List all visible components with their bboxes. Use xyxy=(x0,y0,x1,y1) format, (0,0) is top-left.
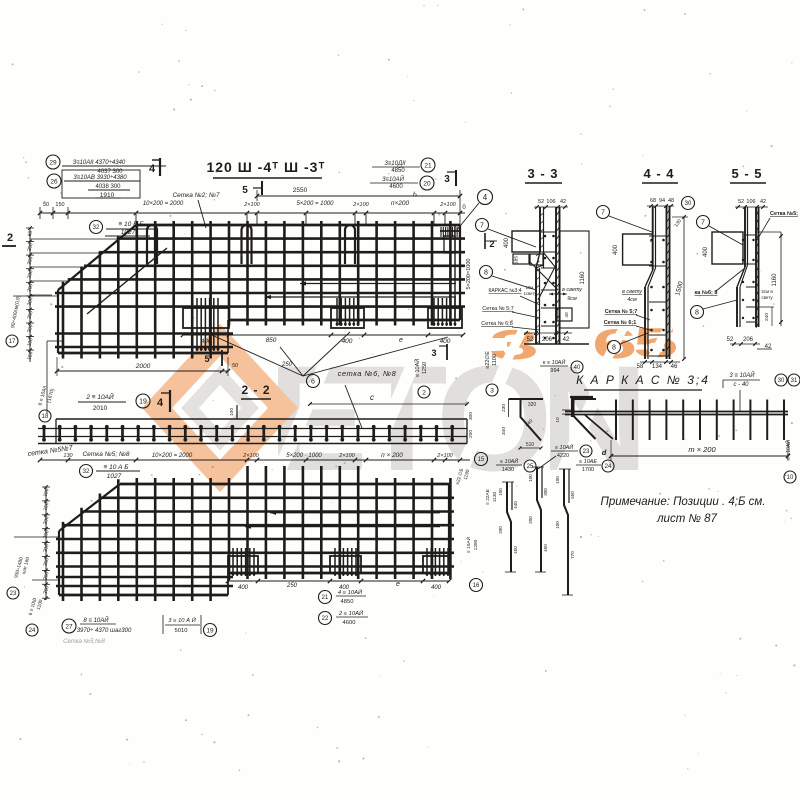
svg-text:e: e xyxy=(399,337,403,344)
svg-text:4 ≡ 10АЙ: 4 ≡ 10АЙ xyxy=(338,588,363,596)
svg-text:КАРКАС №3;4: КАРКАС №3;4 xyxy=(488,288,521,294)
svg-text:150: 150 xyxy=(55,202,64,208)
svg-text:3см в: 3см в xyxy=(761,289,773,294)
svg-text:4600: 4600 xyxy=(343,620,356,626)
svg-text:52: 52 xyxy=(527,337,534,343)
svg-text:24: 24 xyxy=(29,628,36,634)
svg-text:К А Р К А С № 3;4: К А Р К А С № 3;4 xyxy=(576,373,710,387)
svg-text:ка №6; 8: ка №6; 8 xyxy=(695,290,718,296)
svg-text:40: 40 xyxy=(574,365,581,371)
svg-text:≡ 10 А Б: ≡ 10 А Б xyxy=(103,464,128,471)
svg-text:400: 400 xyxy=(238,585,249,591)
svg-text:18: 18 xyxy=(42,414,49,420)
svg-text:в свету: в свету xyxy=(622,289,643,295)
svg-text:1700: 1700 xyxy=(582,467,594,473)
svg-text:100: 100 xyxy=(555,521,560,529)
svg-text:10×200 = 2000: 10×200 = 2000 xyxy=(152,453,193,459)
svg-text:5: 5 xyxy=(242,185,248,196)
svg-text:5×200 = 1000: 5×200 = 1000 xyxy=(296,201,334,207)
svg-text:T: T xyxy=(356,334,448,502)
svg-text:400: 400 xyxy=(504,237,510,248)
svg-text:3≡10ДІІ: 3≡10ДІІ xyxy=(384,161,405,167)
svg-text:10: 10 xyxy=(555,417,561,423)
svg-text:50: 50 xyxy=(232,363,239,369)
svg-text:1430: 1430 xyxy=(502,467,514,473)
svg-text:850: 850 xyxy=(266,337,277,344)
svg-text:19: 19 xyxy=(139,399,147,406)
svg-text:400: 400 xyxy=(342,338,353,345)
svg-text:Примечание: Позиции . 4;Б см.: Примечание: Позиции . 4;Б см. xyxy=(600,496,765,508)
svg-text:Сетка № 5;7: Сетка № 5;7 xyxy=(482,306,514,312)
svg-text:106: 106 xyxy=(546,199,555,205)
svg-text:5 - 5: 5 - 5 xyxy=(731,166,762,181)
svg-text:сетка №6, №8: сетка №6, №8 xyxy=(338,369,397,378)
svg-text:42: 42 xyxy=(760,199,766,205)
svg-text:4850: 4850 xyxy=(341,599,354,605)
svg-text:200: 200 xyxy=(468,430,474,438)
svg-text:8: 8 xyxy=(484,270,488,277)
svg-text:≡ 10АЙ: ≡ 10АЙ xyxy=(500,457,519,465)
svg-text:46: 46 xyxy=(671,364,678,370)
svg-text:17: 17 xyxy=(9,339,16,345)
svg-text:c: c xyxy=(370,393,374,402)
svg-text:лист № 87: лист № 87 xyxy=(656,513,717,525)
svg-text:2×100: 2×100 xyxy=(242,453,259,459)
svg-text:185: 185 xyxy=(514,256,520,264)
svg-text:Ь: Ь xyxy=(413,192,417,198)
svg-text:300: 300 xyxy=(468,412,474,420)
svg-text:106: 106 xyxy=(746,199,755,205)
svg-text:400: 400 xyxy=(201,338,212,345)
svg-text:27: 27 xyxy=(65,623,73,630)
svg-text:510: 510 xyxy=(526,442,535,448)
svg-text:2×100: 2×100 xyxy=(436,453,453,459)
svg-text:10: 10 xyxy=(787,475,794,481)
svg-text:2: 2 xyxy=(7,232,13,244)
svg-text:Сетка №2; №7: Сетка №2; №7 xyxy=(172,192,219,199)
svg-text:1свету: 1свету xyxy=(524,291,538,296)
svg-text:120 Ш -4ᵀ Ш -3ᵀ: 120 Ш -4ᵀ Ш -3ᵀ xyxy=(206,159,325,175)
svg-text:20: 20 xyxy=(423,180,431,187)
svg-text:3970÷ 4370 шаг300: 3970÷ 4370 шаг300 xyxy=(77,628,132,634)
svg-text:свету: свету xyxy=(761,295,773,300)
svg-text:230: 230 xyxy=(501,404,507,412)
svg-text:Сетка № 5;7: Сетка № 5;7 xyxy=(605,309,638,315)
svg-text:9см: 9см xyxy=(567,296,577,302)
svg-text:450: 450 xyxy=(513,546,518,554)
svg-text:48: 48 xyxy=(668,198,674,204)
svg-text:340: 340 xyxy=(501,427,507,435)
svg-text:8 ≡ 10АЙ: 8 ≡ 10АЙ xyxy=(83,616,109,624)
svg-text:3: 3 xyxy=(490,387,494,394)
svg-text:3 - 3: 3 - 3 xyxy=(527,166,558,181)
svg-text:250: 250 xyxy=(286,583,298,589)
svg-text:250: 250 xyxy=(281,362,293,368)
svg-text:400: 400 xyxy=(431,585,442,591)
svg-text:4600: 4600 xyxy=(389,184,403,190)
svg-text:≡ 22АЕ: ≡ 22АЕ xyxy=(485,489,491,505)
svg-text:3 ≡ 10АЙ: 3 ≡ 10АЙ xyxy=(729,371,755,379)
svg-text:Сетка № 6;1: Сетка № 6;1 xyxy=(604,320,637,326)
svg-text:2: 2 xyxy=(489,239,494,249)
svg-text:3≡10АІІ 4370÷4340: 3≡10АІІ 4370÷4340 xyxy=(73,160,126,166)
svg-text:30: 30 xyxy=(778,378,785,384)
svg-text:23: 23 xyxy=(10,591,17,597)
svg-text:e: e xyxy=(396,581,400,588)
svg-text:1160: 1160 xyxy=(772,273,778,287)
svg-text:2 ≡ 10АЙ: 2 ≡ 10АЙ xyxy=(338,609,364,617)
svg-text:100: 100 xyxy=(555,476,560,484)
svg-text:≡ 10АЙ: ≡ 10АЙ xyxy=(555,443,574,451)
svg-text:2000: 2000 xyxy=(135,363,151,370)
svg-text:24: 24 xyxy=(605,464,612,470)
svg-text:42: 42 xyxy=(560,199,566,205)
svg-text:5010: 5010 xyxy=(175,628,188,634)
svg-text:100: 100 xyxy=(528,474,533,482)
svg-text:d: d xyxy=(602,448,607,457)
svg-text:30: 30 xyxy=(685,201,692,207)
svg-text:5×200=1000: 5×200=1000 xyxy=(466,259,472,290)
svg-text:к ≡ 10АЙ: к ≡ 10АЙ xyxy=(543,358,566,366)
svg-text:770: 770 xyxy=(570,551,575,559)
svg-text:21: 21 xyxy=(424,162,432,169)
svg-text:2010: 2010 xyxy=(93,405,108,412)
svg-text:2: 2 xyxy=(422,389,426,396)
svg-text:22: 22 xyxy=(322,616,329,622)
svg-text:32: 32 xyxy=(83,469,90,475)
svg-text:58: 58 xyxy=(637,364,644,370)
svg-text:50: 50 xyxy=(43,202,49,208)
svg-text:94: 94 xyxy=(659,198,665,204)
svg-text:4038 300: 4038 300 xyxy=(95,184,121,190)
svg-text:4 - 4: 4 - 4 xyxy=(643,166,674,181)
svg-text:19: 19 xyxy=(206,627,214,634)
svg-text:3 ≡ 10 А Й: 3 ≡ 10 А Й xyxy=(168,616,196,624)
svg-text:42: 42 xyxy=(563,337,570,343)
svg-text:400: 400 xyxy=(703,246,709,257)
svg-text:Сетка №5;№8: Сетка №5;№8 xyxy=(63,638,105,645)
svg-text:3≡10АЙ: 3≡10АЙ xyxy=(382,175,405,183)
svg-text:4: 4 xyxy=(149,163,156,175)
svg-text:1160: 1160 xyxy=(580,271,586,285)
svg-text:Сетка №5;: Сетка №5; xyxy=(770,211,798,217)
svg-text:26: 26 xyxy=(50,178,58,185)
svg-text:1250: 1250 xyxy=(422,362,428,374)
svg-text:550: 550 xyxy=(570,491,575,499)
svg-text:52: 52 xyxy=(738,199,744,205)
svg-text:300: 300 xyxy=(543,488,548,496)
svg-text:5: 5 xyxy=(204,354,209,364)
svg-text:100: 100 xyxy=(498,488,503,496)
svg-text:1027: 1027 xyxy=(107,473,122,480)
svg-text:200: 200 xyxy=(498,526,503,534)
svg-text:в свету: в свету xyxy=(562,287,583,293)
svg-text:≡22∅Е: ≡22∅Е xyxy=(484,351,491,369)
svg-text:10м.: 10м. xyxy=(526,285,535,290)
svg-text:134: 134 xyxy=(652,364,663,370)
svg-text:2×100: 2×100 xyxy=(352,202,369,208)
svg-text:1100: 1100 xyxy=(492,354,498,366)
svg-text:15: 15 xyxy=(478,457,485,463)
svg-text:2×100: 2×100 xyxy=(439,202,456,208)
svg-text:68: 68 xyxy=(650,198,656,204)
svg-text:≡ 10АЙ: ≡ 10АЙ xyxy=(413,359,421,378)
svg-text:2 - 2: 2 - 2 xyxy=(241,383,270,397)
svg-text:8: 8 xyxy=(695,310,699,317)
svg-text:2 ≡ 10АЙ: 2 ≡ 10АЙ xyxy=(85,392,114,401)
svg-text:320: 320 xyxy=(528,402,537,408)
svg-text:3: 3 xyxy=(431,348,436,358)
svg-text:4: 4 xyxy=(483,193,488,202)
svg-text:с - 40: с - 40 xyxy=(733,382,749,388)
svg-text:206: 206 xyxy=(743,337,754,343)
svg-text:130: 130 xyxy=(63,453,73,459)
svg-text:п×200: п×200 xyxy=(391,200,410,207)
svg-text:21: 21 xyxy=(322,595,329,601)
svg-text:2×100: 2×100 xyxy=(243,202,260,208)
svg-text:52: 52 xyxy=(538,199,544,205)
svg-text:440: 440 xyxy=(513,501,518,509)
svg-text:32: 32 xyxy=(93,225,100,231)
svg-text:4: 4 xyxy=(157,397,164,409)
svg-text:52: 52 xyxy=(727,337,734,343)
svg-text:m × 200: m × 200 xyxy=(688,445,716,454)
svg-text:4850: 4850 xyxy=(391,168,405,174)
svg-text:40: 40 xyxy=(564,312,570,318)
svg-text:200: 200 xyxy=(528,516,533,524)
svg-text:7: 7 xyxy=(701,220,705,227)
svg-text:8: 8 xyxy=(612,345,616,352)
svg-text:п × 200: п × 200 xyxy=(381,452,403,459)
svg-text:206: 206 xyxy=(542,337,553,343)
svg-text:400: 400 xyxy=(613,244,619,255)
svg-text:Сетка № 6;8: Сетка № 6;8 xyxy=(481,321,513,327)
svg-text:7: 7 xyxy=(480,223,484,230)
svg-text:≡ ≡10АЙ: ≡ ≡10АЙ xyxy=(784,440,792,460)
svg-text:994: 994 xyxy=(550,368,559,374)
svg-text:4см: 4см xyxy=(627,297,637,303)
svg-text:10×200 = 2000: 10×200 = 2000 xyxy=(143,201,184,207)
svg-text:3≡10АВ 3930÷4380: 3≡10АВ 3930÷4380 xyxy=(73,175,127,181)
svg-text:29: 29 xyxy=(49,159,57,166)
svg-text:1280: 1280 xyxy=(473,539,479,550)
svg-text:2×100: 2×100 xyxy=(338,453,355,459)
svg-text:3: 3 xyxy=(444,174,450,185)
svg-text:5×200 · 1000: 5×200 · 1000 xyxy=(286,453,322,459)
svg-text:≡ 10АЕ: ≡ 10АЕ xyxy=(579,459,598,465)
svg-text:6: 6 xyxy=(311,379,315,386)
svg-text:23: 23 xyxy=(583,449,590,455)
svg-text:2550: 2550 xyxy=(293,187,308,194)
svg-text:4220: 4220 xyxy=(557,453,569,459)
svg-text:450: 450 xyxy=(543,544,548,552)
svg-text:100: 100 xyxy=(229,408,235,416)
svg-text:16: 16 xyxy=(473,583,480,589)
svg-text:Сетка №5; №8: Сетка №5; №8 xyxy=(82,451,129,458)
svg-text:240: 240 xyxy=(764,313,770,321)
svg-text:31: 31 xyxy=(791,378,798,384)
svg-text:7: 7 xyxy=(601,210,605,217)
svg-text:1130: 1130 xyxy=(492,492,498,503)
